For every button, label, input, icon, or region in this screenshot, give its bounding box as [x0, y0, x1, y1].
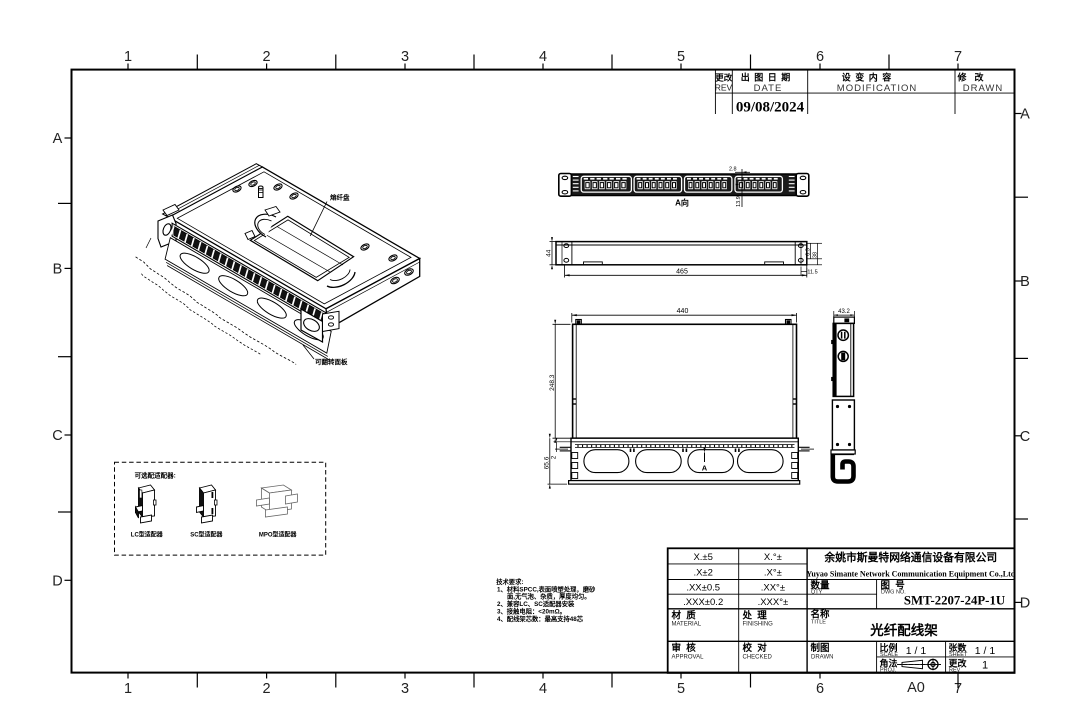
svg-text:余姚市斯曼特网络通信设备有限公司: 余姚市斯曼特网络通信设备有限公司 [823, 550, 997, 564]
svg-text:1: 1 [124, 49, 132, 65]
svg-text:3: 3 [401, 681, 409, 697]
svg-text:QTY: QTY [811, 589, 823, 595]
svg-text:可翻转面板: 可翻转面板 [315, 357, 348, 366]
svg-text:6.3: 6.3 [805, 248, 811, 256]
svg-text:DWG NO.: DWG NO. [881, 589, 906, 595]
svg-text:2、兼容LC、SC适配器安装: 2、兼容LC、SC适配器安装 [497, 599, 575, 608]
svg-text:A: A [1020, 107, 1030, 123]
svg-text:7: 7 [954, 49, 962, 65]
svg-text:CHECKED: CHECKED [743, 655, 773, 661]
svg-text:A: A [53, 131, 63, 147]
svg-text:44: 44 [546, 249, 553, 257]
svg-text:DATE: DATE [754, 83, 783, 94]
svg-text:SMT-2207-24P-1U: SMT-2207-24P-1U [904, 594, 1005, 608]
svg-text:修 改: 修 改 [956, 72, 984, 83]
svg-text:处 理: 处 理 [742, 610, 768, 622]
svg-text:1: 1 [982, 660, 988, 672]
svg-text:熔纤盘: 熔纤盘 [330, 193, 350, 202]
svg-text:SCALE: SCALE [880, 652, 898, 658]
svg-text:C: C [52, 428, 62, 444]
svg-text:3: 3 [401, 49, 409, 65]
svg-text:A: A [702, 464, 708, 473]
svg-text:SHEET: SHEET [949, 652, 968, 658]
svg-text:PROJ.: PROJ. [880, 668, 897, 674]
svg-text:.X°±: .X°± [764, 568, 782, 579]
svg-text:2: 2 [263, 49, 271, 65]
svg-text:6: 6 [816, 49, 824, 65]
svg-text:光纤配线架: 光纤配线架 [869, 622, 938, 638]
svg-text:B: B [1020, 274, 1030, 290]
svg-text:DRAWN: DRAWN [811, 655, 833, 661]
svg-text:13.9: 13.9 [736, 196, 742, 207]
svg-text:C: C [1020, 429, 1030, 445]
svg-text:6: 6 [816, 681, 824, 697]
svg-text:设 变 内 容: 设 变 内 容 [842, 72, 893, 83]
svg-text:审 核: 审 核 [672, 642, 697, 654]
svg-text:A向: A向 [675, 198, 689, 208]
svg-text:4、配线架芯数：最高支持48芯: 4、配线架芯数：最高支持48芯 [497, 614, 584, 623]
svg-text:校 对: 校 对 [743, 642, 768, 654]
svg-text:TITLE: TITLE [811, 620, 826, 626]
svg-text:可选配适配器:: 可选配适配器: [135, 471, 176, 480]
svg-text:DRAWN: DRAWN [963, 83, 1004, 94]
svg-text:440: 440 [677, 308, 689, 315]
svg-text:Yuyao Simante Network Communic: Yuyao Simante Network Communication Equi… [806, 570, 1015, 579]
svg-text:.XXX±0.2: .XXX±0.2 [683, 597, 723, 608]
svg-text:LC型适配器: LC型适配器 [131, 531, 164, 539]
svg-text:MPO型适配器: MPO型适配器 [259, 531, 298, 539]
svg-text:.XX°±: .XX°± [761, 582, 785, 593]
svg-text:38: 38 [812, 252, 818, 258]
svg-text:5: 5 [677, 681, 685, 697]
svg-text:APPROVAL: APPROVAL [672, 655, 705, 661]
svg-text:D: D [52, 573, 62, 589]
svg-text:.XXX°±: .XXX°± [758, 597, 789, 608]
svg-text:X.±5: X.±5 [693, 552, 712, 563]
svg-text:465: 465 [676, 268, 688, 275]
svg-text:REV: REV [715, 83, 733, 93]
svg-text:MODIFICATION: MODIFICATION [837, 83, 917, 94]
svg-text:1、材料SPCC,表面喷塑处理，磨砂: 1、材料SPCC,表面喷塑处理，磨砂 [497, 585, 596, 594]
svg-text:43.2: 43.2 [838, 309, 850, 315]
svg-text:2.8: 2.8 [729, 166, 737, 172]
svg-text:5: 5 [677, 49, 685, 65]
svg-text:3、接触电阻：<20mΩ。: 3、接触电阻：<20mΩ。 [497, 607, 566, 616]
svg-text:4: 4 [539, 49, 547, 65]
svg-text:SC型适配器: SC型适配器 [190, 531, 223, 539]
svg-text:MATERIAL: MATERIAL [672, 622, 702, 628]
svg-text:1 / 1: 1 / 1 [975, 645, 996, 657]
svg-text:4: 4 [539, 681, 547, 697]
svg-text:2: 2 [263, 681, 271, 697]
svg-text:1: 1 [124, 681, 132, 697]
svg-text:制图: 制图 [811, 642, 830, 654]
svg-text:248.3: 248.3 [549, 374, 556, 391]
svg-text:09/08/2024: 09/08/2024 [736, 100, 805, 116]
svg-text:X.°±: X.°± [764, 552, 782, 563]
svg-text:1 / 1: 1 / 1 [906, 645, 927, 657]
svg-text:D: D [1020, 595, 1030, 611]
svg-text:11.5: 11.5 [807, 270, 817, 276]
svg-text:FINISHING: FINISHING [743, 622, 774, 628]
svg-text:技术要求:: 技术要求: [496, 577, 523, 586]
svg-text:面,无气泡、杂质，厚度均匀。: 面,无气泡、杂质，厚度均匀。 [507, 592, 591, 601]
svg-text:更改: 更改 [715, 73, 733, 83]
svg-text:2: 2 [551, 455, 557, 459]
svg-text:.XX±0.5: .XX±0.5 [686, 582, 720, 593]
svg-text:材 质: 材 质 [671, 610, 697, 622]
svg-text:A0: A0 [907, 680, 925, 696]
svg-text:.X±2: .X±2 [693, 568, 712, 579]
svg-text:REV: REV [949, 668, 961, 674]
svg-text:出 图 日 期: 出 图 日 期 [741, 72, 792, 83]
svg-text:B: B [53, 261, 63, 277]
svg-text:65.6: 65.6 [544, 456, 551, 469]
